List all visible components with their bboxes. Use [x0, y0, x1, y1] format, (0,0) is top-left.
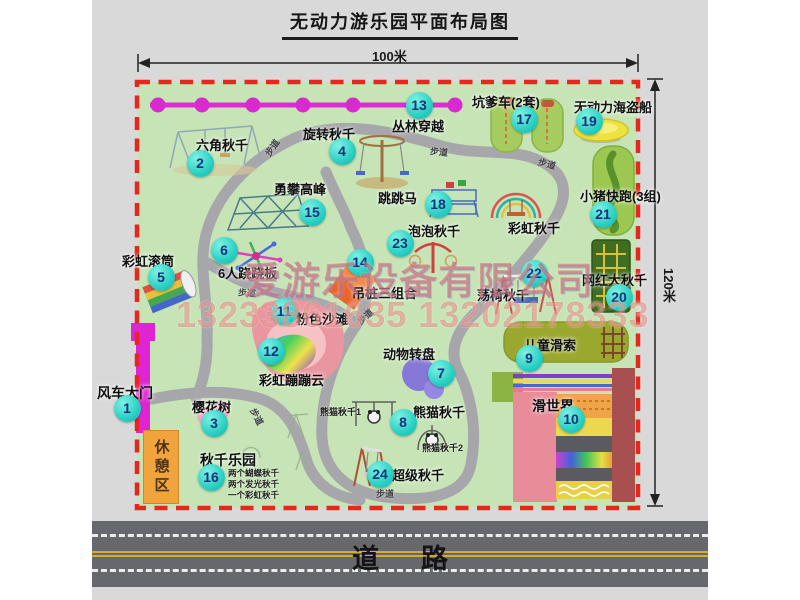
- park-map-graphic: [0, 0, 800, 600]
- rest-area-label: 休憩区: [151, 439, 172, 496]
- rest-area: 休憩区: [143, 430, 179, 504]
- kids-zipline-icon: [504, 322, 628, 362]
- big-swing-field-icon: [592, 240, 630, 312]
- pirate-ship-icon: [574, 119, 628, 143]
- dimension-top-label: 100米: [372, 46, 407, 65]
- road-label: 道路: [92, 537, 708, 576]
- dimension-right-label: 120米: [659, 268, 678, 303]
- jungle-crossing-zipline: [150, 98, 463, 113]
- road: 道路: [92, 521, 708, 587]
- slide-world-icon: [492, 368, 635, 502]
- piggy-run-track-icon: [593, 146, 634, 235]
- page-title: 无动力游乐园平面布局图: [282, 8, 518, 40]
- screenshot-stage: 无动力游乐园平面布局图 100米 120米 休憩区 风车大门1六角秋千2樱花树3…: [0, 0, 800, 600]
